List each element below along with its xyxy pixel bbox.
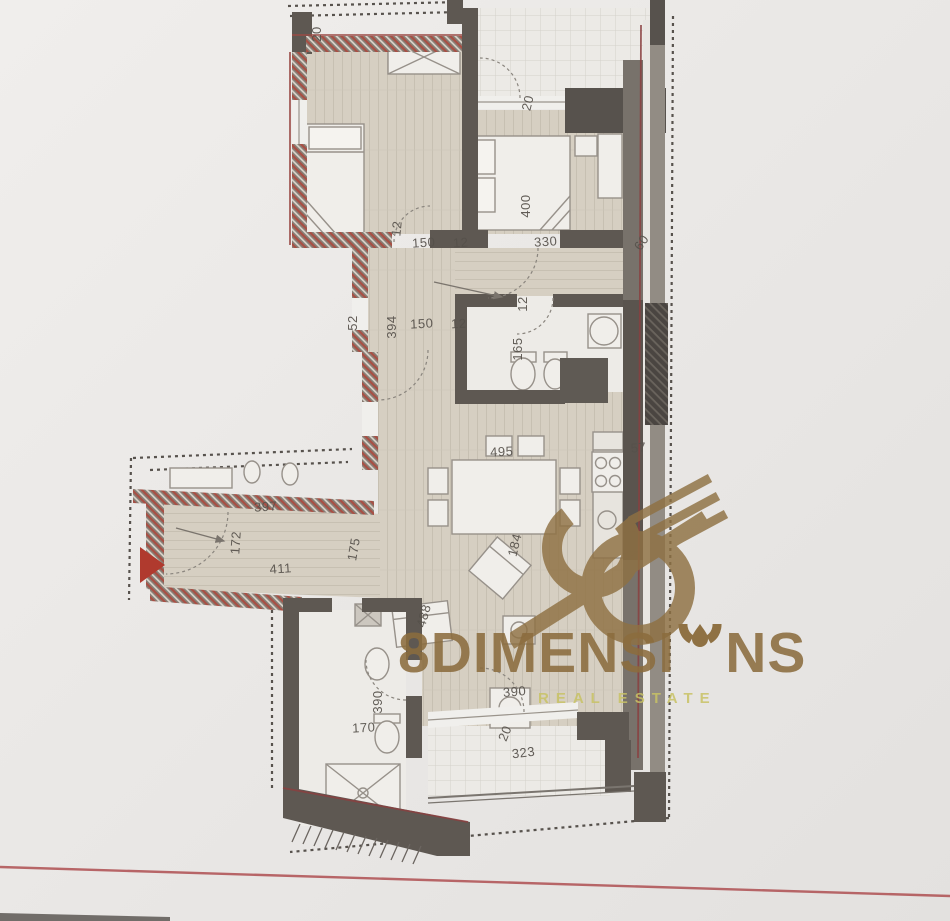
dimension-label: 150 xyxy=(412,234,436,251)
sink-icon xyxy=(244,461,260,483)
bed-icon xyxy=(306,124,364,234)
shower-icon xyxy=(588,314,621,348)
dimension-label: 330 xyxy=(534,233,558,250)
exterior-wall-hatched xyxy=(306,36,464,52)
terrace-floor xyxy=(462,8,650,100)
washing-machine-icon xyxy=(503,616,535,644)
dimension-label: 394 xyxy=(384,315,399,338)
dimension-label: 52 xyxy=(345,315,360,330)
wall-hatched xyxy=(292,232,392,248)
dimension-label: 172 xyxy=(227,531,244,555)
dimension-label: 12 xyxy=(515,296,530,311)
dimension-label: 150 xyxy=(410,315,434,331)
dimension-label: 390 xyxy=(502,683,526,700)
dimension-label: 57 xyxy=(630,439,647,456)
window xyxy=(362,402,378,436)
sink-icon xyxy=(282,463,298,485)
dimension-label: 323 xyxy=(511,744,536,762)
dimension-label: 12 xyxy=(388,220,405,237)
cabinet-icon xyxy=(170,468,232,488)
kitchen-counter xyxy=(593,432,623,558)
dresser-icon xyxy=(598,134,622,198)
floor-plan-drawing: 2015012123302040060394150121216552495573… xyxy=(0,0,950,921)
dimension-label: 400 xyxy=(518,194,533,217)
dimension-label: 170 xyxy=(352,719,376,735)
stove-icon xyxy=(592,452,624,492)
photo-edge xyxy=(0,913,170,921)
nightstand-icon xyxy=(575,136,597,156)
entrance-wall-hatched xyxy=(146,503,164,591)
dimension-label: 20 xyxy=(309,26,324,41)
dimension-label: 390 xyxy=(370,690,385,713)
sink-icon xyxy=(365,648,389,680)
dimension-label: 12 xyxy=(452,234,468,250)
shaft-hatched xyxy=(645,303,668,425)
red-reference-line xyxy=(0,867,950,896)
dimension-label: 411 xyxy=(269,560,292,577)
dimension-label: 12 xyxy=(451,316,467,332)
dimension-label: 397 xyxy=(254,498,278,515)
dimension-label: 165 xyxy=(510,337,525,360)
corridor-top-floor xyxy=(455,248,623,296)
toilet-icon xyxy=(374,714,400,753)
exterior-wall-hatched xyxy=(292,52,307,248)
dimension-label: 495 xyxy=(490,443,514,459)
